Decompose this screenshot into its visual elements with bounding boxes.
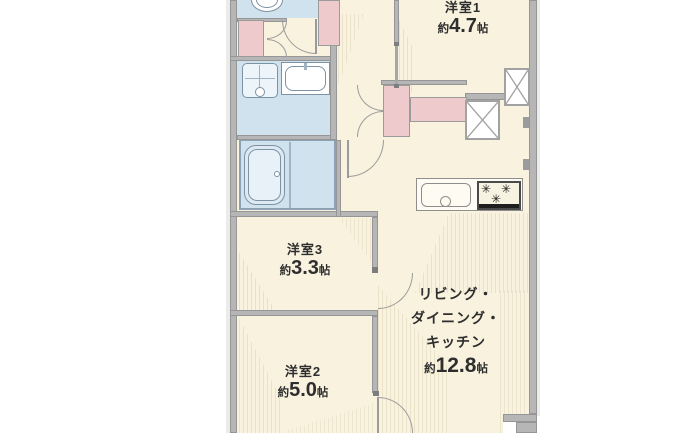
bedroom1-sliding-door	[395, 44, 398, 86]
area-unit: 帖	[317, 387, 329, 399]
closet-vertical	[383, 85, 410, 137]
wall-bedroom3-bedroom2	[230, 310, 378, 316]
stove-burner-icon: ✳	[491, 193, 501, 205]
ldk-entry-door-leaf	[347, 140, 349, 178]
wall-bathroom-bedroom3	[230, 211, 378, 217]
wall-bedroom1-left	[394, 0, 399, 44]
wall-node	[523, 117, 529, 128]
area-approx: 約	[280, 265, 292, 277]
bath-knob-icon	[274, 171, 280, 177]
room-label-bedroom2: 洋室2 約5.0帖	[248, 364, 358, 404]
plan-outline	[537, 0, 540, 416]
wall-right-exterior	[529, 0, 537, 414]
floor-plan: ✳ ✳ ✳ 洋室1 約4.7帖 洋室3 約3.3帖 洋室2 約5.0帖 リビング…	[0, 0, 700, 433]
sliding-door-node	[394, 42, 399, 46]
room-name: 洋室3	[250, 242, 360, 257]
room-label-bedroom1: 洋室1 約4.7帖	[408, 0, 518, 40]
wall-node	[523, 159, 529, 170]
hall-closet	[238, 20, 264, 57]
pillar-icon	[504, 68, 530, 106]
room-name: 洋室1	[408, 0, 518, 15]
room-area: 約12.8帖	[400, 354, 512, 381]
wall-bedroom3-ldk	[372, 217, 378, 273]
wall-bottom-right-stub	[516, 422, 537, 433]
room-name: キッチン	[400, 330, 512, 354]
room-area: 約3.3帖	[250, 257, 360, 282]
room-area: 約5.0帖	[248, 379, 358, 404]
room-area: 約4.7帖	[408, 15, 518, 40]
wall-washroom-bathroom	[237, 135, 337, 140]
room-name: 洋室2	[248, 364, 358, 379]
area-approx: 約	[424, 363, 436, 375]
room-name: ダイニング・	[400, 306, 512, 330]
stove-burner-icon: ✳	[481, 183, 491, 195]
closet-horizontal	[410, 97, 467, 122]
wall-bottom-right-step	[503, 414, 537, 422]
area-unit: 帖	[477, 23, 489, 35]
room-label-ldk: リビング・ ダイニング・ キッチン 約12.8帖	[400, 282, 512, 381]
bathroom-door	[289, 142, 291, 208]
area-value: 4.7	[449, 15, 477, 37]
area-unit: 帖	[319, 265, 331, 277]
washing-machine-drain-icon	[255, 87, 265, 97]
pillar-icon	[465, 100, 500, 140]
bedroom2-door-leaf	[377, 397, 379, 433]
faucet-icon	[304, 63, 307, 70]
area-value: 12.8	[436, 354, 477, 377]
room-label-bedroom3: 洋室3 約3.3帖	[250, 242, 360, 282]
exterior-cutout	[503, 422, 516, 433]
area-approx: 約	[438, 23, 450, 35]
stove-burner-icon: ✳	[501, 183, 511, 195]
hall-storage	[318, 0, 340, 46]
wall-bedroom2-ldk	[372, 316, 378, 393]
toilet-door-leaf	[315, 19, 317, 54]
washing-machine-icon	[245, 78, 275, 79]
wall-bathroom-right	[336, 140, 341, 217]
area-unit: 帖	[476, 363, 488, 375]
sliding-door-node	[394, 84, 399, 88]
area-approx: 約	[278, 387, 290, 399]
area-value: 3.3	[291, 257, 319, 279]
wall-node	[373, 391, 379, 396]
sink-drain-icon	[440, 196, 451, 207]
room-name: リビング・	[400, 282, 512, 306]
area-value: 5.0	[289, 379, 317, 401]
